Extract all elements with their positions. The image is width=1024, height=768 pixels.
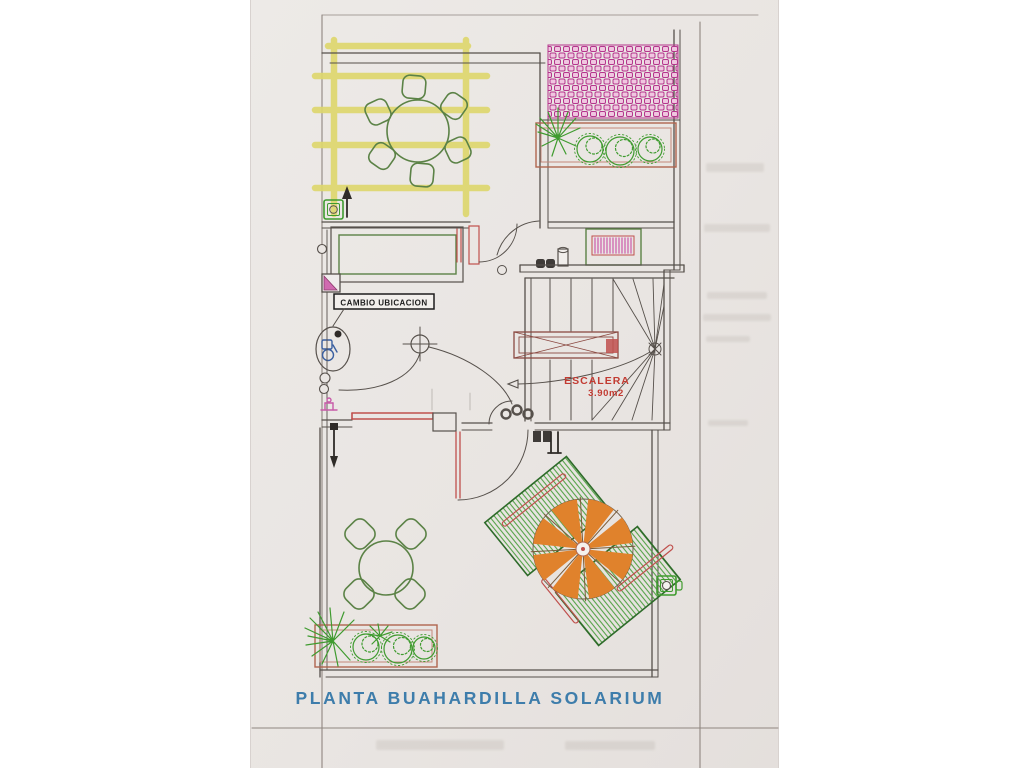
stair-area-label: 3.90m2 [588, 388, 624, 399]
callout-label: CAMBIO UBICACION [340, 299, 427, 308]
tiled-roof-hatch [540, 45, 680, 120]
page-title: PLANTA BUAHARDILLA SOLARIUM [296, 688, 665, 708]
hinge-icon [546, 259, 555, 268]
floor-plan-canvas: ESCALERA 3.90m2 CAMBIO UBICACION [0, 0, 1024, 768]
door-stop-icon [543, 431, 551, 442]
switch-icon [320, 373, 330, 383]
door-leaf-icon [433, 413, 456, 431]
door-leaf-icon [469, 226, 479, 264]
hinge-icon [536, 259, 545, 268]
stair-label: ESCALERA [564, 375, 630, 387]
door-stop-icon [533, 431, 541, 442]
scanned-floor-plan-page: ESCALERA 3.90m2 CAMBIO UBICACION [0, 0, 1024, 768]
switch-icon [320, 385, 329, 394]
